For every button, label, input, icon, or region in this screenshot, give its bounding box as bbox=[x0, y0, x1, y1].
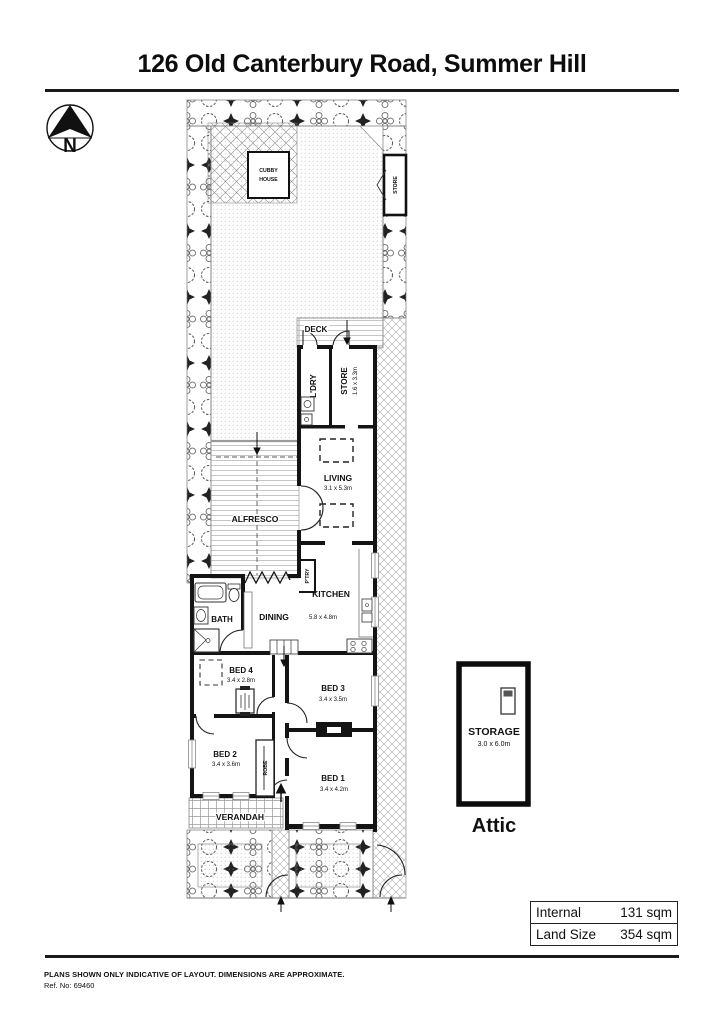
kitchen-dining-dims: 5.8 x 4.8m bbox=[309, 615, 337, 621]
robe-label: ROBE bbox=[263, 760, 269, 776]
floorplan-page: 126 Old Canterbury Road, Summer Hill bbox=[0, 0, 724, 1024]
storage-dims: 3.0 x 6.0m bbox=[478, 741, 511, 748]
laundry-label: L'DRY bbox=[309, 374, 318, 398]
alfresco-deck bbox=[211, 441, 299, 578]
shower-icon bbox=[194, 629, 219, 652]
dining-label: DINING bbox=[259, 612, 289, 622]
washer-icon bbox=[301, 397, 314, 411]
table-row: Land Size 354 sqm bbox=[531, 923, 677, 945]
compass-north-label: N bbox=[63, 136, 77, 157]
living-label: LIVING bbox=[324, 473, 353, 483]
land-size-label: Land Size bbox=[536, 926, 596, 943]
alfresco-label: ALFRESCO bbox=[232, 514, 279, 524]
bed4-label: BED 4 bbox=[229, 666, 253, 675]
attic-storage: STORAGE 3.0 x 6.0m Attic bbox=[459, 664, 528, 837]
bed2-label: BED 2 bbox=[213, 750, 237, 759]
footer: PLANS SHOWN ONLY INDICATIVE OF LAYOUT. D… bbox=[44, 969, 345, 991]
dining-cabinet bbox=[244, 592, 252, 648]
front-garden bbox=[187, 830, 406, 898]
laundry-tub-icon bbox=[301, 414, 312, 425]
area-summary-table: Internal 131 sqm Land Size 354 sqm bbox=[530, 901, 678, 946]
internal-label: Internal bbox=[536, 904, 581, 921]
floorplan-drawing: N bbox=[0, 0, 724, 1024]
bed1-fireplace-icon bbox=[316, 722, 352, 737]
cubby-house-label-1: CUBBY bbox=[259, 168, 278, 174]
basin-icon bbox=[194, 607, 208, 624]
store-dims: 1.6 x 3.3m bbox=[353, 367, 359, 395]
toilet-icon bbox=[228, 584, 240, 602]
garden-store-label: STORE bbox=[393, 176, 399, 194]
reference-number: Ref. No: 69460 bbox=[44, 980, 345, 991]
cubby-house bbox=[248, 152, 289, 198]
bed4-dims: 3.4 x 2.8m bbox=[227, 678, 255, 684]
ladder-icon bbox=[501, 688, 515, 714]
bathtub-icon bbox=[195, 583, 226, 602]
storage-label: STORAGE bbox=[468, 726, 520, 738]
deck-label: DECK bbox=[305, 325, 328, 334]
pantry-label: P'TRY bbox=[305, 568, 311, 583]
bed2-dims: 3.4 x 3.6m bbox=[212, 762, 240, 768]
cubby-house-label-2: HOUSE bbox=[259, 177, 278, 183]
table-row: Internal 131 sqm bbox=[531, 902, 677, 923]
internal-value: 131 sqm bbox=[620, 904, 672, 921]
bed1-label: BED 1 bbox=[321, 774, 345, 783]
attic-caption: Attic bbox=[472, 815, 516, 837]
bed4-fireplace-icon bbox=[236, 686, 254, 716]
living-dims: 3.1 x 5.3m bbox=[324, 486, 352, 492]
footer-divider bbox=[45, 955, 679, 958]
kitchen-label: KITCHEN bbox=[312, 589, 350, 599]
store-label: STORE bbox=[340, 367, 349, 395]
verandah-label: VERANDAH bbox=[216, 812, 264, 822]
bath-label: BATH bbox=[211, 615, 233, 624]
disclaimer-text: PLANS SHOWN ONLY INDICATIVE OF LAYOUT. D… bbox=[44, 969, 345, 980]
sink-icon bbox=[362, 599, 372, 622]
bed3-dims: 3.4 x 3.5m bbox=[319, 697, 347, 703]
bed3-label: BED 3 bbox=[321, 684, 345, 693]
north-compass: N bbox=[47, 105, 93, 157]
stove-icon bbox=[347, 639, 372, 653]
bed1-dims: 3.4 x 4.2m bbox=[320, 787, 348, 793]
land-size-value: 354 sqm bbox=[620, 926, 672, 943]
